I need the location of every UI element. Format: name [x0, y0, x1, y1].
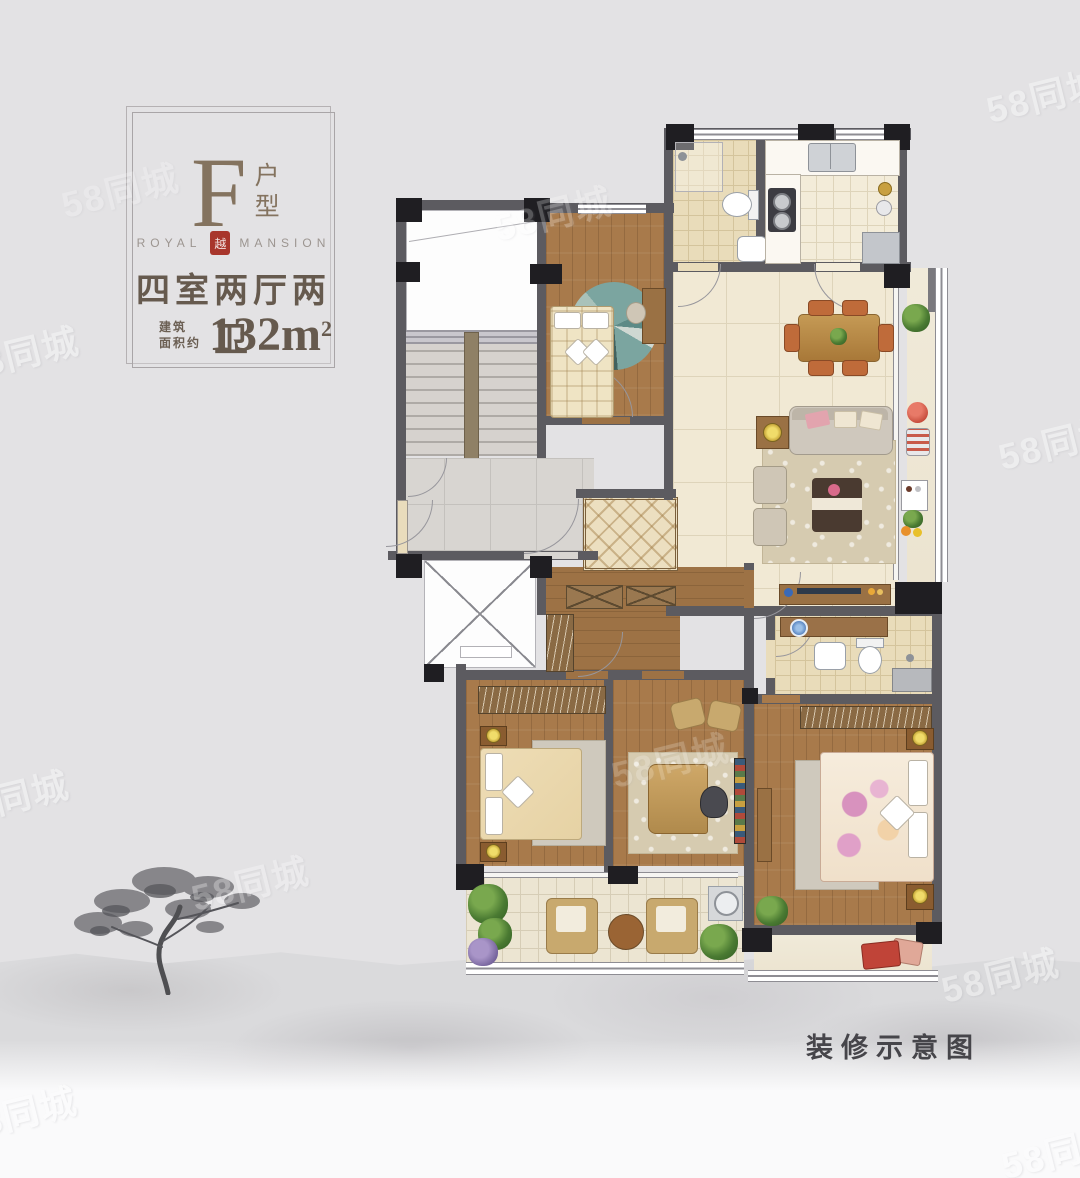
- balcony-flower: [468, 938, 498, 966]
- flower-decor: [828, 484, 840, 496]
- area-prefix-line2: 面积约: [159, 335, 201, 351]
- sofa-cushion: [834, 411, 857, 428]
- pillow: [908, 760, 928, 806]
- pier: [530, 264, 562, 284]
- pillow: [485, 797, 503, 835]
- lamp: [486, 728, 501, 743]
- chair-cushion: [556, 906, 586, 932]
- pier: [396, 198, 422, 222]
- pillow: [554, 312, 581, 329]
- table-lamp: [763, 423, 782, 442]
- shower-tray: [892, 668, 932, 692]
- kitchen-sink-divider: [830, 144, 831, 169]
- door-gap: [642, 671, 684, 679]
- fruit: [913, 528, 922, 537]
- balcony-table: [608, 914, 644, 950]
- window-balcony-south: [466, 962, 744, 975]
- elevator-panel: [460, 646, 512, 658]
- fruit: [901, 526, 911, 536]
- window-balcony-east: [935, 268, 948, 582]
- unit-letter: F: [191, 143, 247, 243]
- bookshelf: [734, 758, 746, 844]
- wall-segment: [456, 664, 466, 880]
- window: [694, 129, 798, 140]
- pier: [424, 664, 444, 682]
- wall-segment: [744, 925, 942, 935]
- bay-bench: [861, 940, 902, 970]
- lamp: [486, 844, 501, 859]
- potted-plant: [756, 896, 788, 926]
- pillow: [582, 312, 609, 329]
- unit-letter-row: F 户 型: [191, 143, 280, 243]
- pier: [396, 554, 422, 578]
- burner: [773, 212, 791, 230]
- area-value: 132m: [209, 308, 321, 361]
- table-runner: [812, 498, 862, 510]
- watermark: 58同城: [992, 401, 1080, 480]
- red-pot: [907, 402, 928, 423]
- watermark: 58同城: [0, 312, 85, 391]
- door-gap: [744, 570, 754, 608]
- brand-left: ROYAL: [137, 236, 202, 250]
- armchair: [753, 508, 787, 546]
- unit-label: 户 型: [255, 161, 280, 224]
- wall-segment: [744, 563, 754, 936]
- lamp: [912, 888, 928, 904]
- vessel-sink: [790, 619, 808, 637]
- tv: [797, 588, 861, 594]
- wall-segment: [932, 600, 942, 694]
- dining-chair: [808, 360, 834, 376]
- hall-cabinet: [626, 586, 676, 606]
- potted-plant: [902, 304, 930, 332]
- shower-head-icon: [678, 152, 687, 161]
- dining-chair: [808, 300, 834, 316]
- area-value-wrap: 132m2: [209, 311, 332, 359]
- area-prefix-line1: 建筑: [159, 319, 201, 335]
- lamp: [912, 730, 928, 746]
- toilet: [722, 192, 752, 217]
- wardrobe: [478, 686, 606, 714]
- shower-zone: [675, 142, 723, 192]
- armchair: [753, 466, 787, 504]
- pier: [916, 922, 942, 944]
- caption-label: 装修示意图: [806, 1026, 981, 1065]
- wall-segment: [576, 489, 676, 498]
- dining-chair: [784, 324, 800, 352]
- window-bay-south: [748, 970, 938, 982]
- pier: [884, 264, 910, 288]
- pier: [742, 688, 758, 704]
- pier: [396, 262, 420, 282]
- pillow: [485, 753, 503, 791]
- decor-bowl: [784, 588, 793, 597]
- kitchen-sink: [808, 143, 856, 172]
- sofa-cushion: [859, 410, 884, 431]
- wall-segment: [664, 420, 673, 500]
- washbasin: [737, 236, 767, 262]
- washer-drum: [714, 891, 739, 916]
- door-gap: [766, 640, 775, 678]
- brand-seal: 越: [210, 231, 230, 255]
- pier: [742, 928, 772, 952]
- floorplan-page: F 户 型 ROYAL 越 MANSION 四室两厅两卫 建筑 面积约 132m…: [0, 0, 1080, 1178]
- centerpiece: [830, 328, 847, 345]
- watermark: 58同城: [980, 54, 1080, 133]
- shower-head-icon: [906, 654, 914, 662]
- fridge: [862, 232, 900, 264]
- balcony-plant: [700, 924, 738, 960]
- switch-panel: [901, 480, 928, 511]
- window: [836, 129, 884, 140]
- desk-chair: [626, 302, 646, 324]
- jar: [878, 182, 892, 196]
- pillow: [908, 812, 928, 858]
- brand-row: ROYAL 越 MANSION: [133, 231, 334, 255]
- hall-wardrobe: [546, 614, 574, 672]
- door-gap: [582, 417, 630, 424]
- switch-dot: [915, 486, 921, 492]
- area-superscript: 2: [321, 316, 332, 341]
- unit-label-char-2: 型: [255, 192, 280, 223]
- watermark: 58同城: [0, 756, 75, 835]
- dining-chair: [878, 324, 894, 352]
- pier: [895, 582, 942, 614]
- burner: [773, 193, 791, 211]
- stair-rail: [464, 332, 479, 460]
- candle: [877, 589, 883, 595]
- dining-chair: [842, 360, 868, 376]
- candle: [868, 588, 875, 595]
- door-gap: [762, 695, 800, 703]
- toilet: [858, 646, 882, 674]
- pier: [530, 556, 552, 578]
- dining-chair: [842, 300, 868, 316]
- unit-label-char-1: 户: [255, 161, 280, 192]
- jar: [876, 200, 892, 216]
- brand-right: MANSION: [239, 236, 330, 250]
- area-prefix: 建筑 面积约: [159, 319, 201, 351]
- area-row: 建筑 面积约 132m2: [159, 311, 332, 359]
- hall-cabinet: [566, 585, 623, 609]
- chair-cushion: [656, 906, 686, 932]
- pier: [608, 866, 638, 884]
- master-tv-cabinet: [757, 788, 772, 862]
- switch-dot: [906, 486, 912, 492]
- striped-stool: [906, 428, 930, 456]
- washbasin: [814, 642, 846, 670]
- study-chair: [700, 786, 728, 818]
- master-wardrobe: [800, 706, 932, 729]
